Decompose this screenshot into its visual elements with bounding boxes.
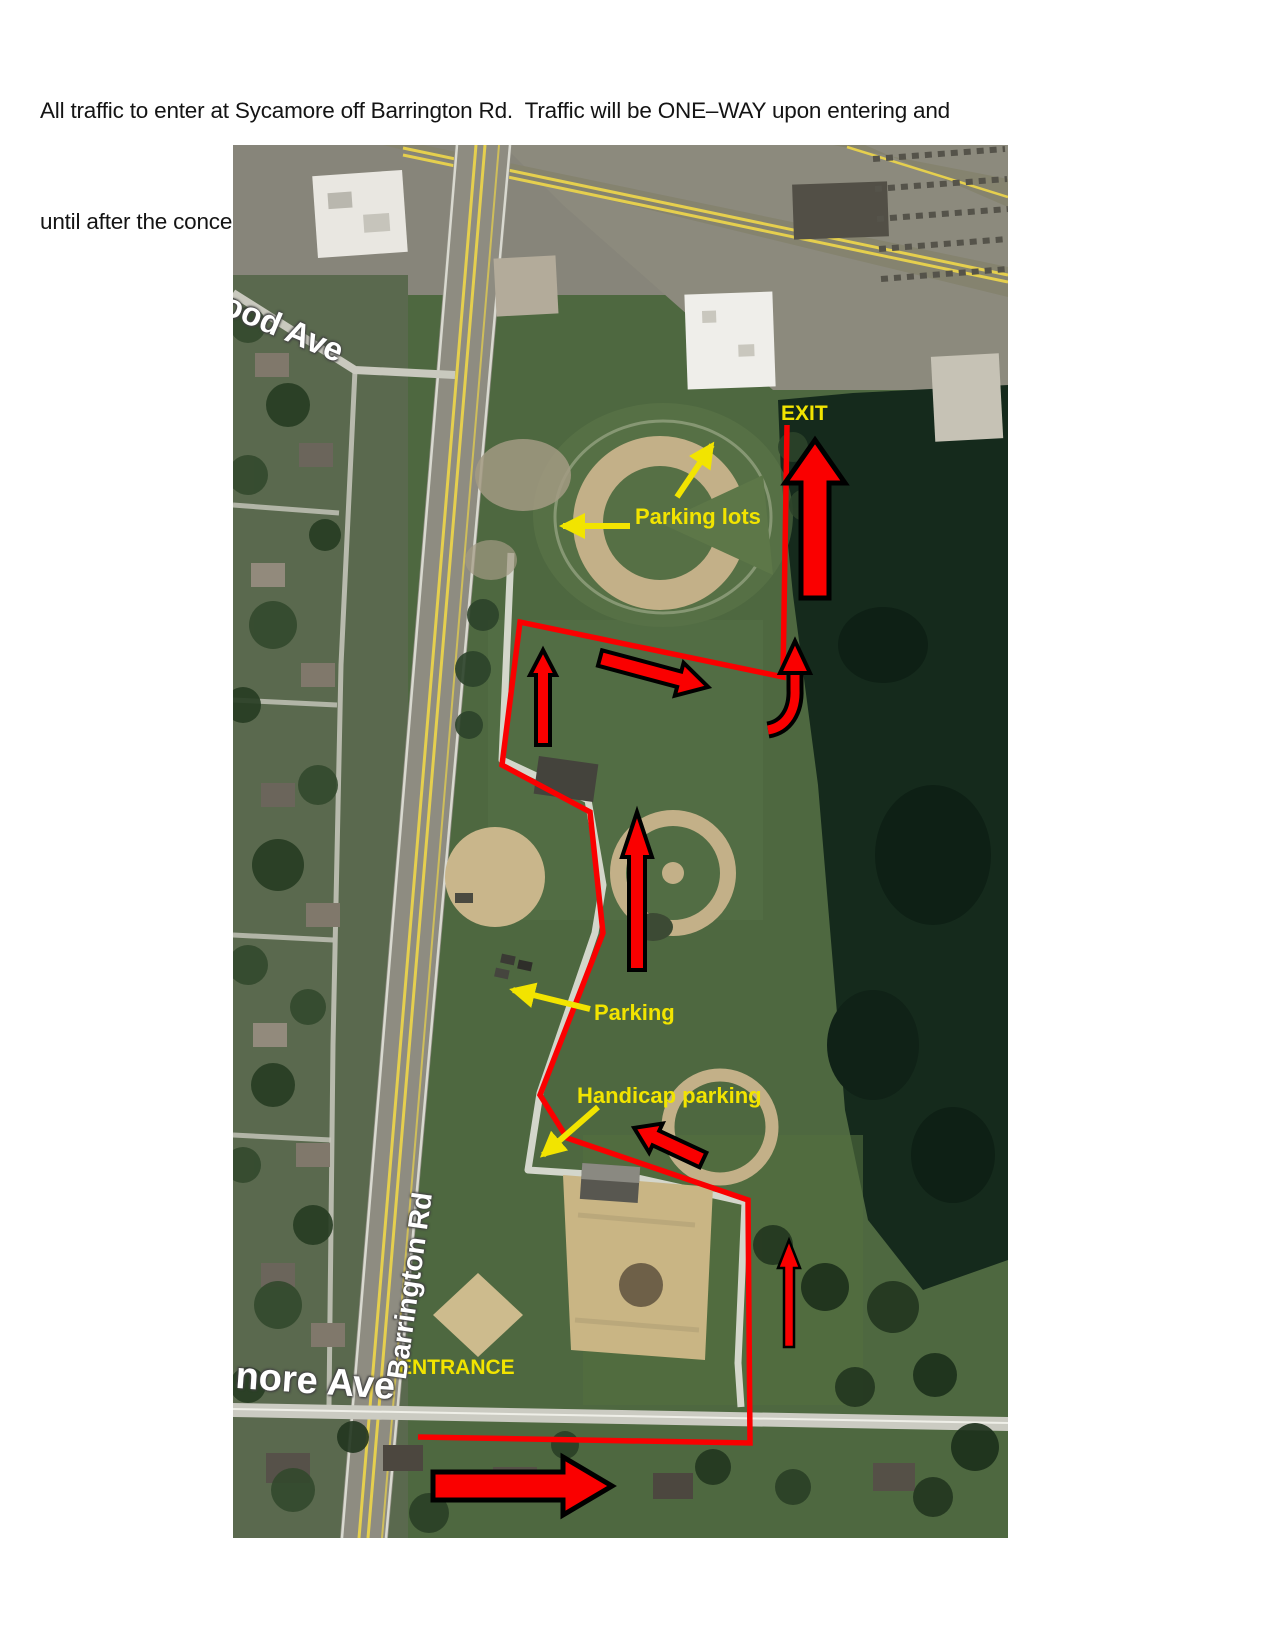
exit-label: EXIT	[781, 403, 828, 424]
handicap-parking-label: Handicap parking	[577, 1085, 762, 1107]
document-page: All traffic to enter at Sycamore off Bar…	[0, 0, 1275, 1650]
traffic-map: EXIT Parking lots Parking Handicap parki…	[233, 145, 1008, 1538]
parking-lots-label: Parking lots	[635, 506, 761, 528]
aerial-map-image	[233, 145, 1008, 1538]
parking-label: Parking	[594, 1002, 675, 1024]
entrance-label: ENTRANCE	[398, 1357, 515, 1378]
intro-line-1: All traffic to enter at Sycamore off Bar…	[40, 92, 1170, 129]
